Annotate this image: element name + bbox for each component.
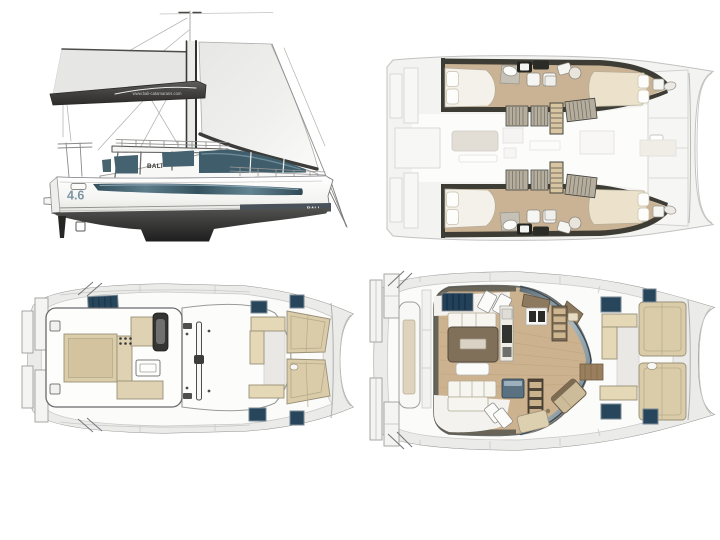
svg-text:BALI: BALI xyxy=(147,163,163,170)
svg-text:4.6: 4.6 xyxy=(67,189,84,203)
svg-text:www.bali-catamarans.com: www.bali-catamarans.com xyxy=(133,91,182,96)
